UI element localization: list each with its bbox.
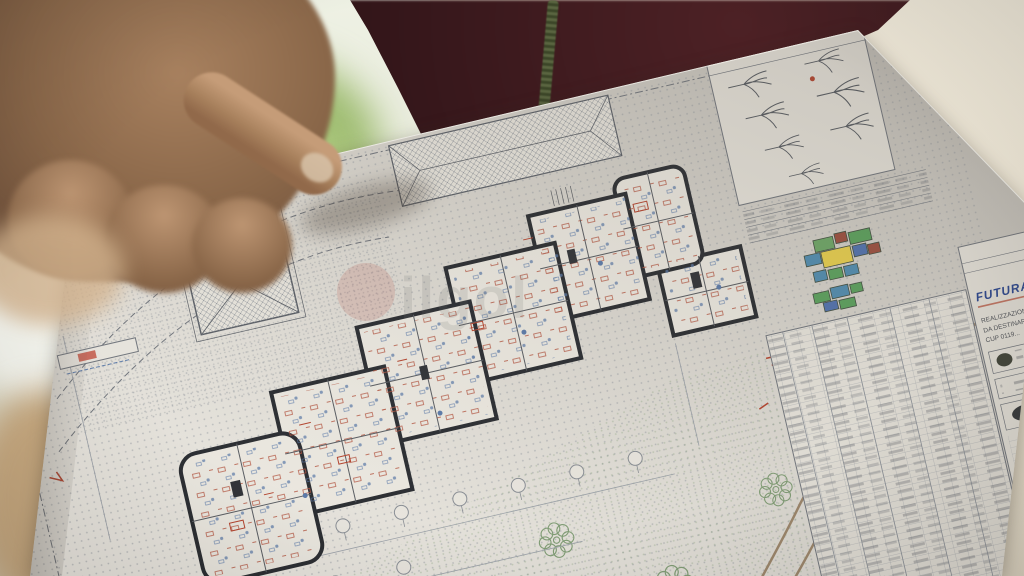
fingernail (295, 147, 339, 189)
knuckle-bump (192, 198, 292, 293)
photo: FUTURA REALIZZAZIONE DI N... DA DESTINAR… (0, 0, 1024, 576)
pointing-hand (0, 0, 450, 320)
